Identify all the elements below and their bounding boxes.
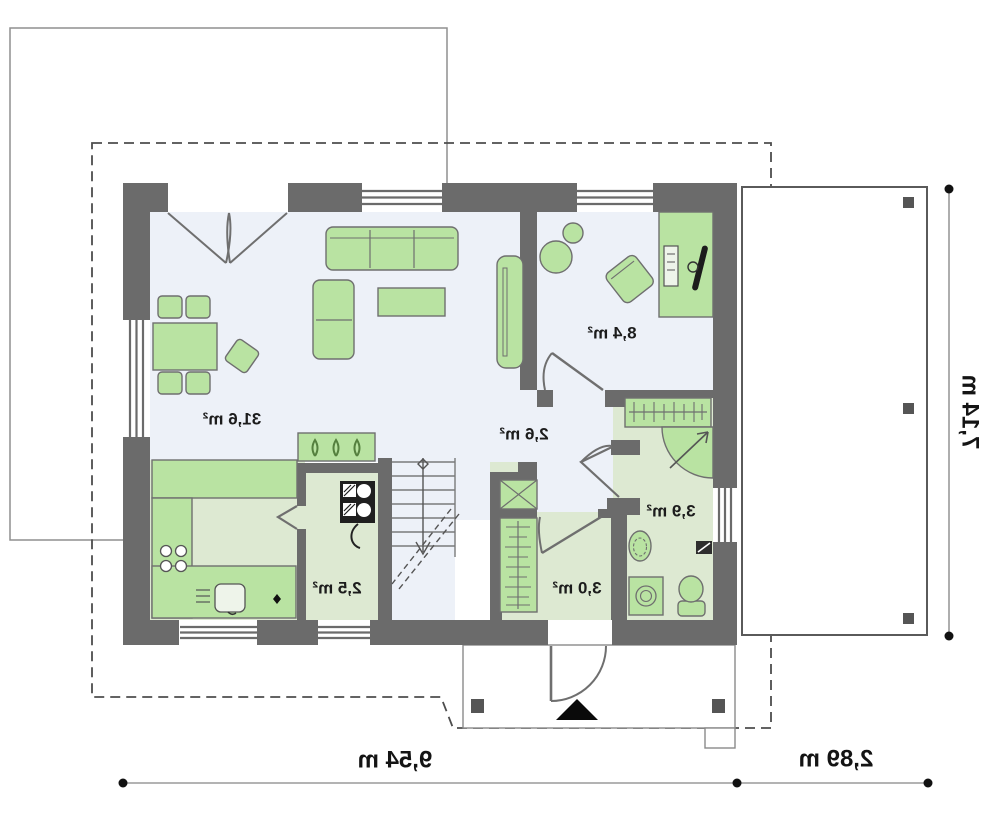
closets [500, 480, 537, 612]
bathroom-sink [629, 531, 651, 561]
wall-vent [696, 541, 712, 554]
boiler-stove [340, 481, 375, 523]
living-area-label: 31,6 m² [202, 409, 261, 428]
terrace-post [903, 403, 914, 414]
dining-table [153, 323, 217, 370]
coffee-table [378, 288, 445, 316]
right-side-dim-label: 7,14 m [957, 375, 984, 450]
bedroom-wardrobe [625, 398, 711, 427]
window-kitchen-bottom [180, 621, 257, 644]
sofa [326, 227, 458, 270]
bottom-secondary-dim-label: 2,89 m [799, 745, 874, 772]
entry-porch [463, 645, 735, 748]
kitchen-counter [152, 460, 297, 498]
fireplace [298, 433, 375, 461]
dining-chair [158, 372, 182, 394]
bottom-main-dim-label: 9,54 m [358, 746, 433, 773]
tv-sideboard [497, 256, 523, 368]
floor-plan-canvas: 31,6 m² 2,5 m² 2,6 m² 3,0 m² 3,9 m² 8,4 … [0, 0, 1000, 822]
bedroom-area-label: 8,4 m² [587, 323, 636, 342]
window-boiler-bottom [318, 621, 370, 644]
porch-post [712, 699, 725, 713]
terrace-post [903, 613, 914, 624]
right-dimension: 7,14 m [945, 185, 984, 641]
corridor-area-label: 2,6 m² [499, 424, 548, 443]
wardrobe-rod-closet [500, 518, 537, 612]
terrace [742, 187, 927, 635]
bottom-dimension: 9,54 m 2,89 m [119, 745, 933, 787]
terrace-post [903, 197, 914, 208]
washing-machine [629, 577, 663, 615]
window-living-left [124, 320, 149, 437]
window-bathroom-right [714, 488, 736, 542]
window-living-top [362, 184, 442, 211]
window-bedroom-top [577, 184, 653, 211]
bathroom-area-label: 3,9 m² [646, 501, 695, 520]
dining-chair [186, 372, 210, 394]
porch-step [705, 728, 735, 748]
dining-chair [186, 296, 210, 318]
armchair [313, 280, 354, 359]
porch-post [471, 699, 484, 713]
hall-area-label: 3,0 m² [552, 578, 601, 597]
dining-chair [158, 296, 182, 318]
toilet [678, 576, 705, 616]
boiler-area-label: 2,5 m² [312, 578, 361, 597]
storage-closet [500, 480, 537, 509]
desk [659, 212, 713, 317]
